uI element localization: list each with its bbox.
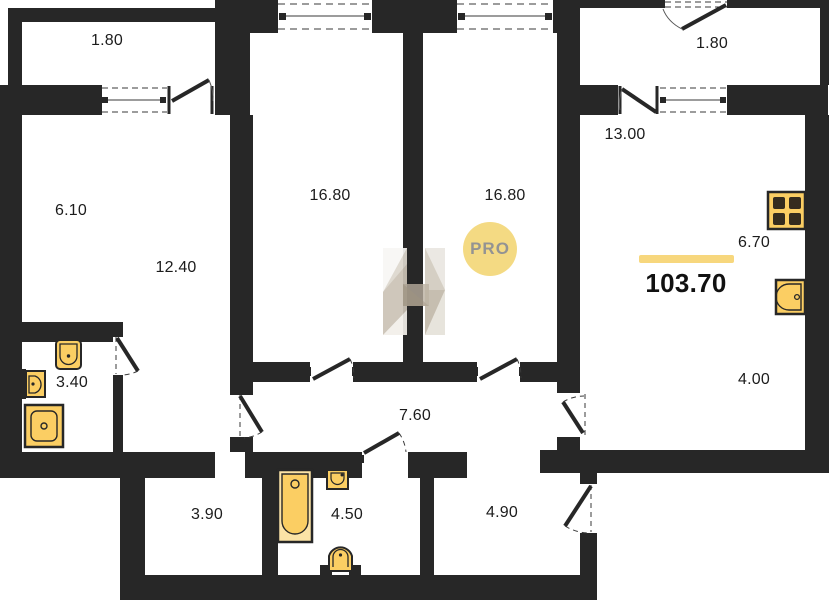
shower-tray-icon	[25, 405, 63, 447]
door-balcony-right	[619, 86, 657, 114]
room-label-bedroom-1: 16.80	[309, 187, 350, 205]
stove-icon	[768, 192, 805, 229]
room-label-hallway: 7.60	[399, 407, 431, 425]
room-label-bathroom-bottom: 4.50	[331, 506, 363, 524]
floor-plan: 1.80 1.80 6.10 12.40 16.80 16.80 13.00 6…	[0, 0, 829, 600]
door-left-wing	[240, 395, 262, 438]
room-label-room-left-lower: 12.40	[155, 259, 196, 277]
total-area: 103.70	[636, 255, 736, 299]
toilet-left-icon	[56, 328, 81, 369]
door-kitchen-living	[563, 394, 585, 436]
window-bedroom-2	[457, 4, 553, 29]
bathtub-icon	[278, 470, 312, 542]
room-label-bathroom-left: 3.40	[56, 374, 88, 392]
room-label-room-left-upper: 6.10	[55, 202, 87, 220]
floor-plan-drawing	[0, 0, 829, 600]
door-bedroom-1	[303, 359, 360, 379]
door-entrance	[565, 485, 591, 533]
door-bedroom-2	[470, 359, 527, 379]
room-label-entry-hall: 4.90	[486, 504, 518, 522]
room-label-hall-right: 4.00	[738, 371, 770, 389]
window-bedroom-1	[278, 4, 372, 29]
toilet-bottom-icon	[329, 547, 352, 571]
room-label-storage: 3.90	[191, 506, 223, 524]
window-balcony-left	[102, 88, 167, 112]
room-label-bedroom-2: 16.80	[484, 187, 525, 205]
washbasin-bottom-icon	[327, 470, 348, 489]
pro-badge: PRO	[463, 222, 517, 276]
total-area-value: 103.70	[636, 268, 736, 299]
door-bathroom-bottom	[356, 433, 406, 463]
room-label-balcony-left: 1.80	[91, 32, 123, 50]
door-balcony-top	[663, 2, 727, 29]
room-label-balcony-right: 1.80	[696, 35, 728, 53]
washbasin-left-icon	[19, 369, 45, 399]
door-balcony-left	[169, 80, 213, 114]
window-balcony-right	[660, 88, 727, 112]
room-label-kitchen-zone: 6.70	[738, 234, 770, 252]
total-area-underline	[639, 255, 734, 263]
kitchen-sink-icon	[776, 280, 805, 314]
room-label-kitchen-living: 13.00	[604, 126, 645, 144]
door-bathroom-left	[116, 337, 138, 375]
